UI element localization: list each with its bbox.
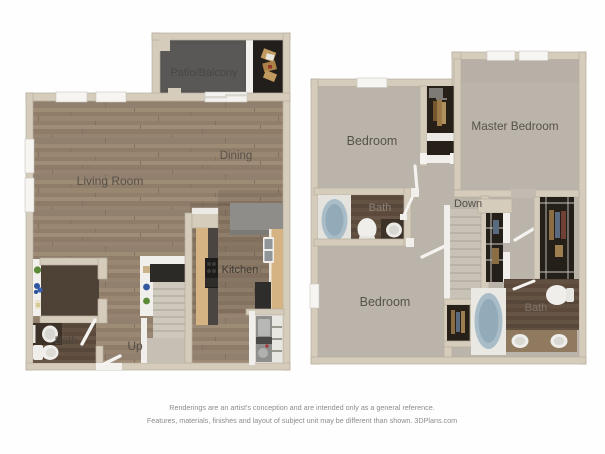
svg-text:Bath: Bath xyxy=(55,335,78,347)
svg-text:Dining: Dining xyxy=(220,150,253,162)
svg-text:Master Bedroom: Master Bedroom xyxy=(471,119,558,133)
svg-text:Features, materials, finishes: Features, materials, finishes and layout… xyxy=(147,416,457,425)
svg-text:Bath: Bath xyxy=(525,302,548,314)
svg-text:Down: Down xyxy=(454,198,482,210)
svg-text:Living Room: Living Room xyxy=(77,174,144,188)
svg-text:Bath: Bath xyxy=(369,202,392,214)
svg-text:Bedroom: Bedroom xyxy=(360,295,411,309)
svg-text:Up: Up xyxy=(127,339,143,353)
svg-text:Patio/Balcony: Patio/Balcony xyxy=(170,67,238,79)
svg-text:Renderings are an artist's con: Renderings are an artist's conception an… xyxy=(169,403,434,412)
svg-text:Kitchen: Kitchen xyxy=(222,264,259,276)
svg-text:Bedroom: Bedroom xyxy=(347,134,398,148)
